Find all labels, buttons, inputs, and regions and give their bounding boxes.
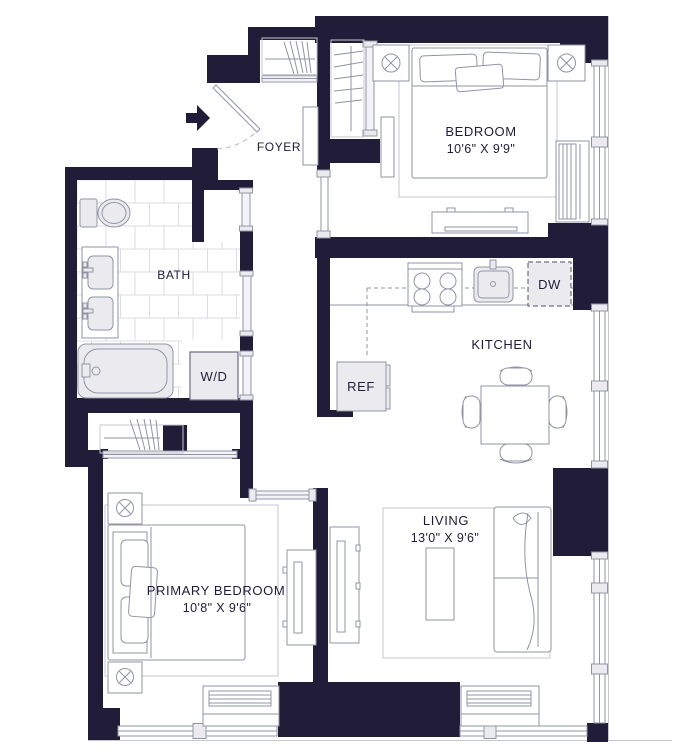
dishwasher-label: DW — [538, 277, 561, 292]
tv-console — [330, 527, 360, 643]
dishwasher: DW — [528, 262, 571, 306]
bath-label: BATH — [157, 268, 191, 282]
foyer-label: FOYER — [257, 140, 301, 154]
bedroom-window — [592, 60, 608, 225]
bedroom-nightstand-right — [548, 45, 585, 81]
primary-nightstand-bottom — [108, 662, 142, 693]
bathtub — [78, 344, 173, 398]
living-window-right — [592, 552, 608, 723]
floor-plan-canvas: W/D DW REF — [0, 0, 677, 755]
kitchen-label: KITCHEN — [471, 337, 532, 352]
living-ac-unit — [461, 686, 539, 726]
kitchen-window — [592, 304, 608, 468]
refrigerator-label: REF — [347, 379, 375, 394]
primary-bedroom-dimensions: 10'8" X 9'6" — [183, 601, 252, 615]
coffee-table — [426, 548, 454, 620]
bedroom-dresser — [432, 208, 528, 233]
foyer-console-table — [303, 107, 318, 165]
washer-dryer: W/D — [190, 352, 238, 400]
bedroom-nightstand-left — [373, 45, 409, 81]
floor-plan: W/D DW REF — [0, 0, 677, 755]
primary-bedroom-label: PRIMARY BEDROOM — [147, 583, 286, 598]
vanity-double-sink — [82, 247, 118, 338]
primary-closet-slider — [103, 451, 237, 458]
primary-dresser — [283, 550, 316, 645]
primary-bedroom-entry — [249, 489, 316, 501]
stove — [408, 263, 462, 312]
bedroom-dimensions: 10'6" X 9'9" — [447, 142, 516, 156]
washer-dryer-label: W/D — [200, 369, 227, 384]
refrigerator: REF — [337, 362, 390, 411]
primary-ac-unit — [203, 686, 279, 726]
toilet — [80, 199, 130, 227]
bedroom-label: BEDROOM — [445, 124, 516, 139]
bedroom-ac-unit — [556, 141, 589, 222]
living-label: LIVING — [423, 513, 469, 528]
sofa — [494, 507, 551, 652]
primary-nightstand-top — [108, 493, 142, 524]
bedroom-bed — [412, 48, 547, 178]
bedroom-cabinet — [381, 117, 394, 177]
living-dimensions: 13'0" X 9'6" — [411, 531, 480, 545]
